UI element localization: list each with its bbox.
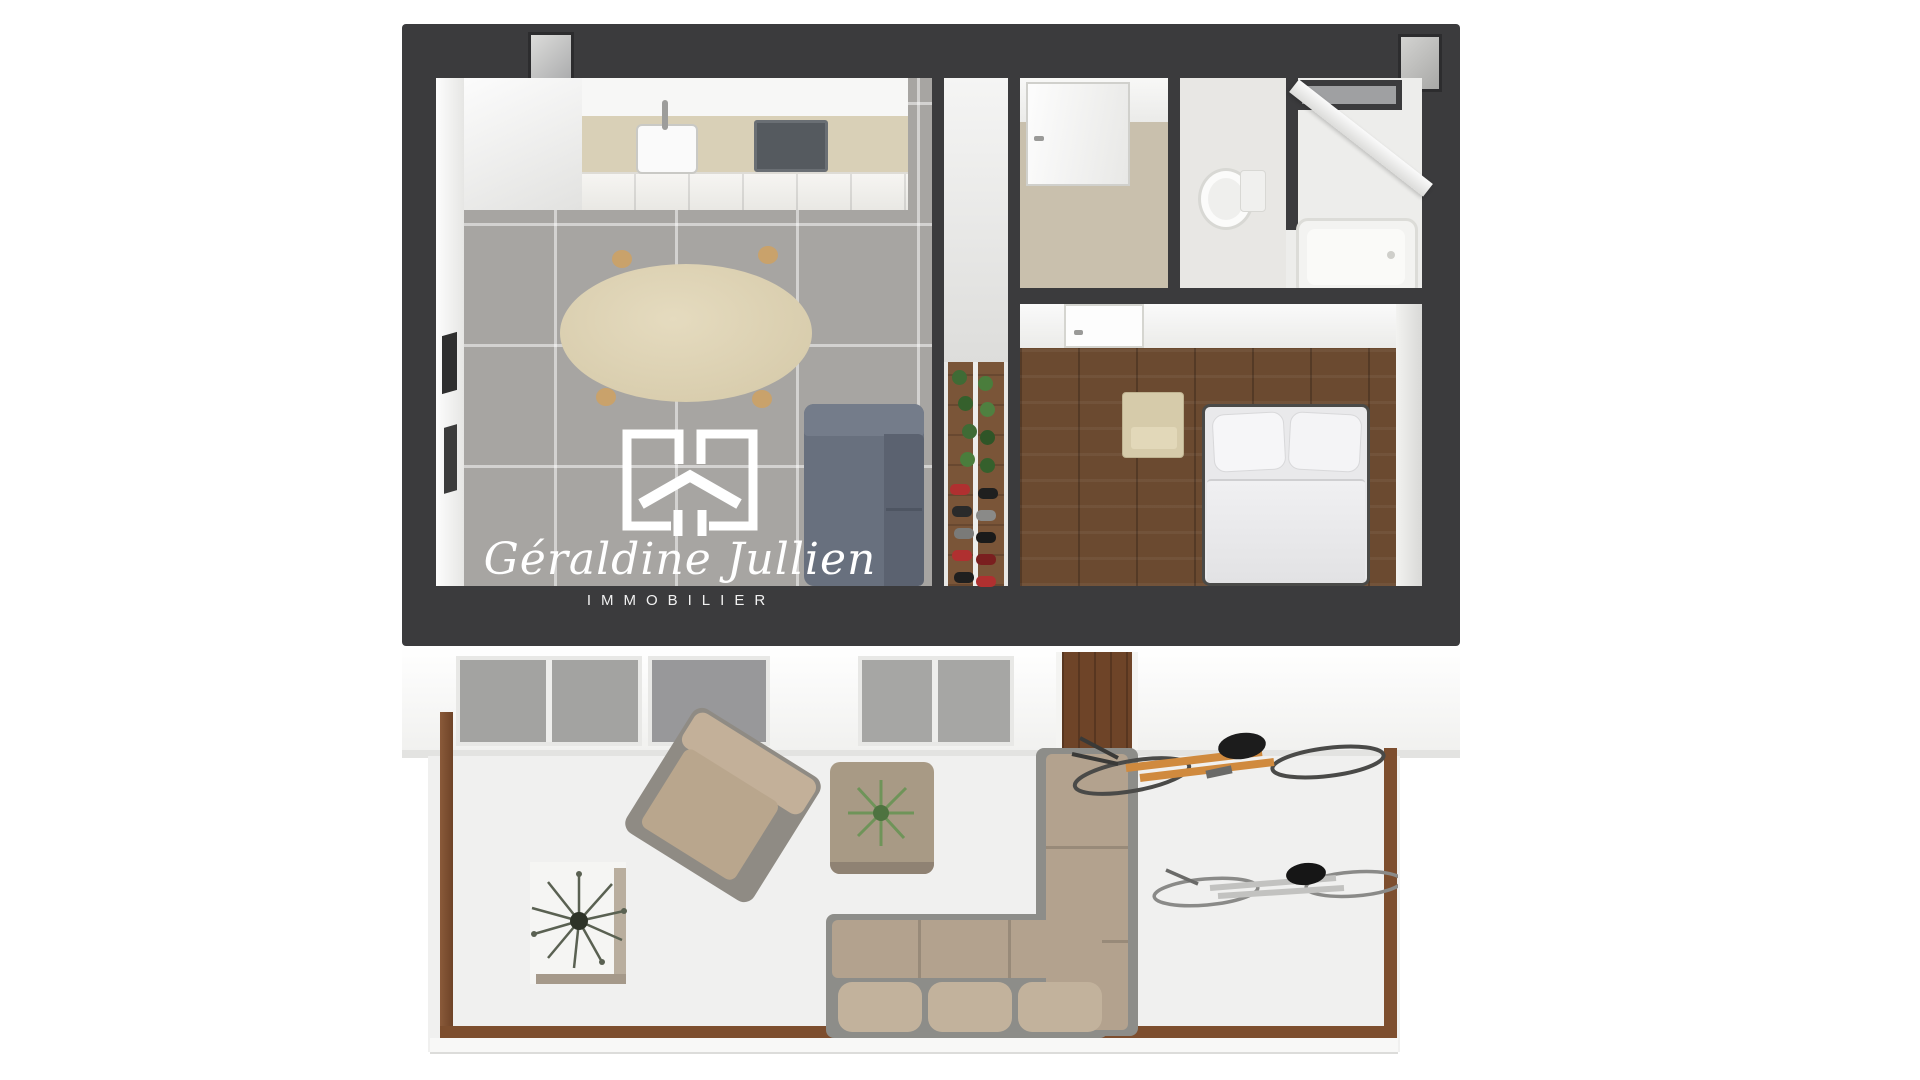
pillow xyxy=(1212,411,1287,473)
wc-room xyxy=(1168,78,1286,302)
window-mullion xyxy=(932,660,938,742)
bathroom xyxy=(1286,78,1422,302)
wall-art-frame xyxy=(444,424,457,494)
rack-shoes xyxy=(950,484,970,495)
wall-art-frame xyxy=(442,332,457,394)
brand-subtitle: IMMOBILIER xyxy=(556,592,806,609)
bedroom-right-wall xyxy=(1396,304,1422,586)
bathtub-drain xyxy=(1387,251,1395,259)
kitchen-far-wall xyxy=(582,78,908,116)
rack-plants xyxy=(952,370,967,385)
shoe-rack-corridor xyxy=(932,78,1020,586)
sliding-glass-window xyxy=(858,656,1014,746)
rack-rail xyxy=(973,362,978,586)
pouf-shade xyxy=(830,862,934,874)
nightstand xyxy=(1122,392,1184,458)
bike-wheel xyxy=(1271,741,1386,782)
front-door xyxy=(1026,82,1130,186)
window-mullion xyxy=(546,660,552,742)
bedroom-door xyxy=(1064,304,1144,348)
duvet xyxy=(1207,479,1365,583)
kitchen-tall-cabinet xyxy=(464,78,582,210)
corridor-wall xyxy=(932,78,944,586)
bathtub xyxy=(1296,218,1418,298)
kitchen-counter-drawers xyxy=(582,172,908,210)
table-leg xyxy=(612,250,632,268)
door-handle xyxy=(1074,330,1083,335)
corridor-upper-wall xyxy=(944,78,1008,362)
shoe-rack xyxy=(944,362,1008,586)
corridor-wall xyxy=(1008,78,1020,586)
bike-handlebar xyxy=(1072,738,1118,764)
table-leg xyxy=(752,390,772,408)
double-bed xyxy=(1202,404,1370,586)
toilet-tank xyxy=(1240,170,1266,212)
sofa-armrest xyxy=(804,404,924,436)
brand-name: Géraldine Jullien xyxy=(470,534,890,585)
toilet-seat xyxy=(1208,178,1244,220)
cooktop xyxy=(754,120,828,172)
pouf-plant xyxy=(836,768,926,858)
outdoor-sofa-seat-cushion xyxy=(838,982,922,1032)
dried-plant xyxy=(514,856,644,986)
wc-wall xyxy=(1168,78,1180,302)
outdoor-sofa-seat-cushion xyxy=(928,982,1012,1032)
door-handle xyxy=(1034,136,1044,141)
kitchen-backsplash xyxy=(582,116,908,172)
pillow xyxy=(1288,411,1363,473)
outdoor-sofa-seat-cushion xyxy=(1018,982,1102,1032)
table-leg xyxy=(758,246,778,264)
bedroom-partition-wall xyxy=(1020,288,1422,304)
sofa-cushion-seam xyxy=(886,508,922,511)
bedroom xyxy=(1020,304,1422,586)
outdoor-sofa-back-cushions xyxy=(832,920,1102,978)
oval-dining-table xyxy=(560,264,812,402)
sliding-glass-window xyxy=(456,656,642,746)
kitchen-faucet xyxy=(662,100,668,130)
bike-frame xyxy=(1210,878,1344,896)
rack-rail xyxy=(944,362,948,586)
left-wall xyxy=(436,78,464,586)
nightstand-drawer xyxy=(1131,427,1177,449)
floorplan-render: Géraldine Jullien IMMOBILIER xyxy=(0,0,1920,1080)
orange-bicycle xyxy=(1066,716,1386,816)
house-frame-icon xyxy=(614,422,766,546)
terrace-wood-border xyxy=(440,712,453,1036)
entrance-hall xyxy=(1020,78,1168,302)
terrace-slab-edge xyxy=(430,1038,1398,1054)
kitchen-sink xyxy=(636,124,698,174)
silver-bicycle xyxy=(1148,850,1398,922)
table-leg xyxy=(596,388,616,406)
